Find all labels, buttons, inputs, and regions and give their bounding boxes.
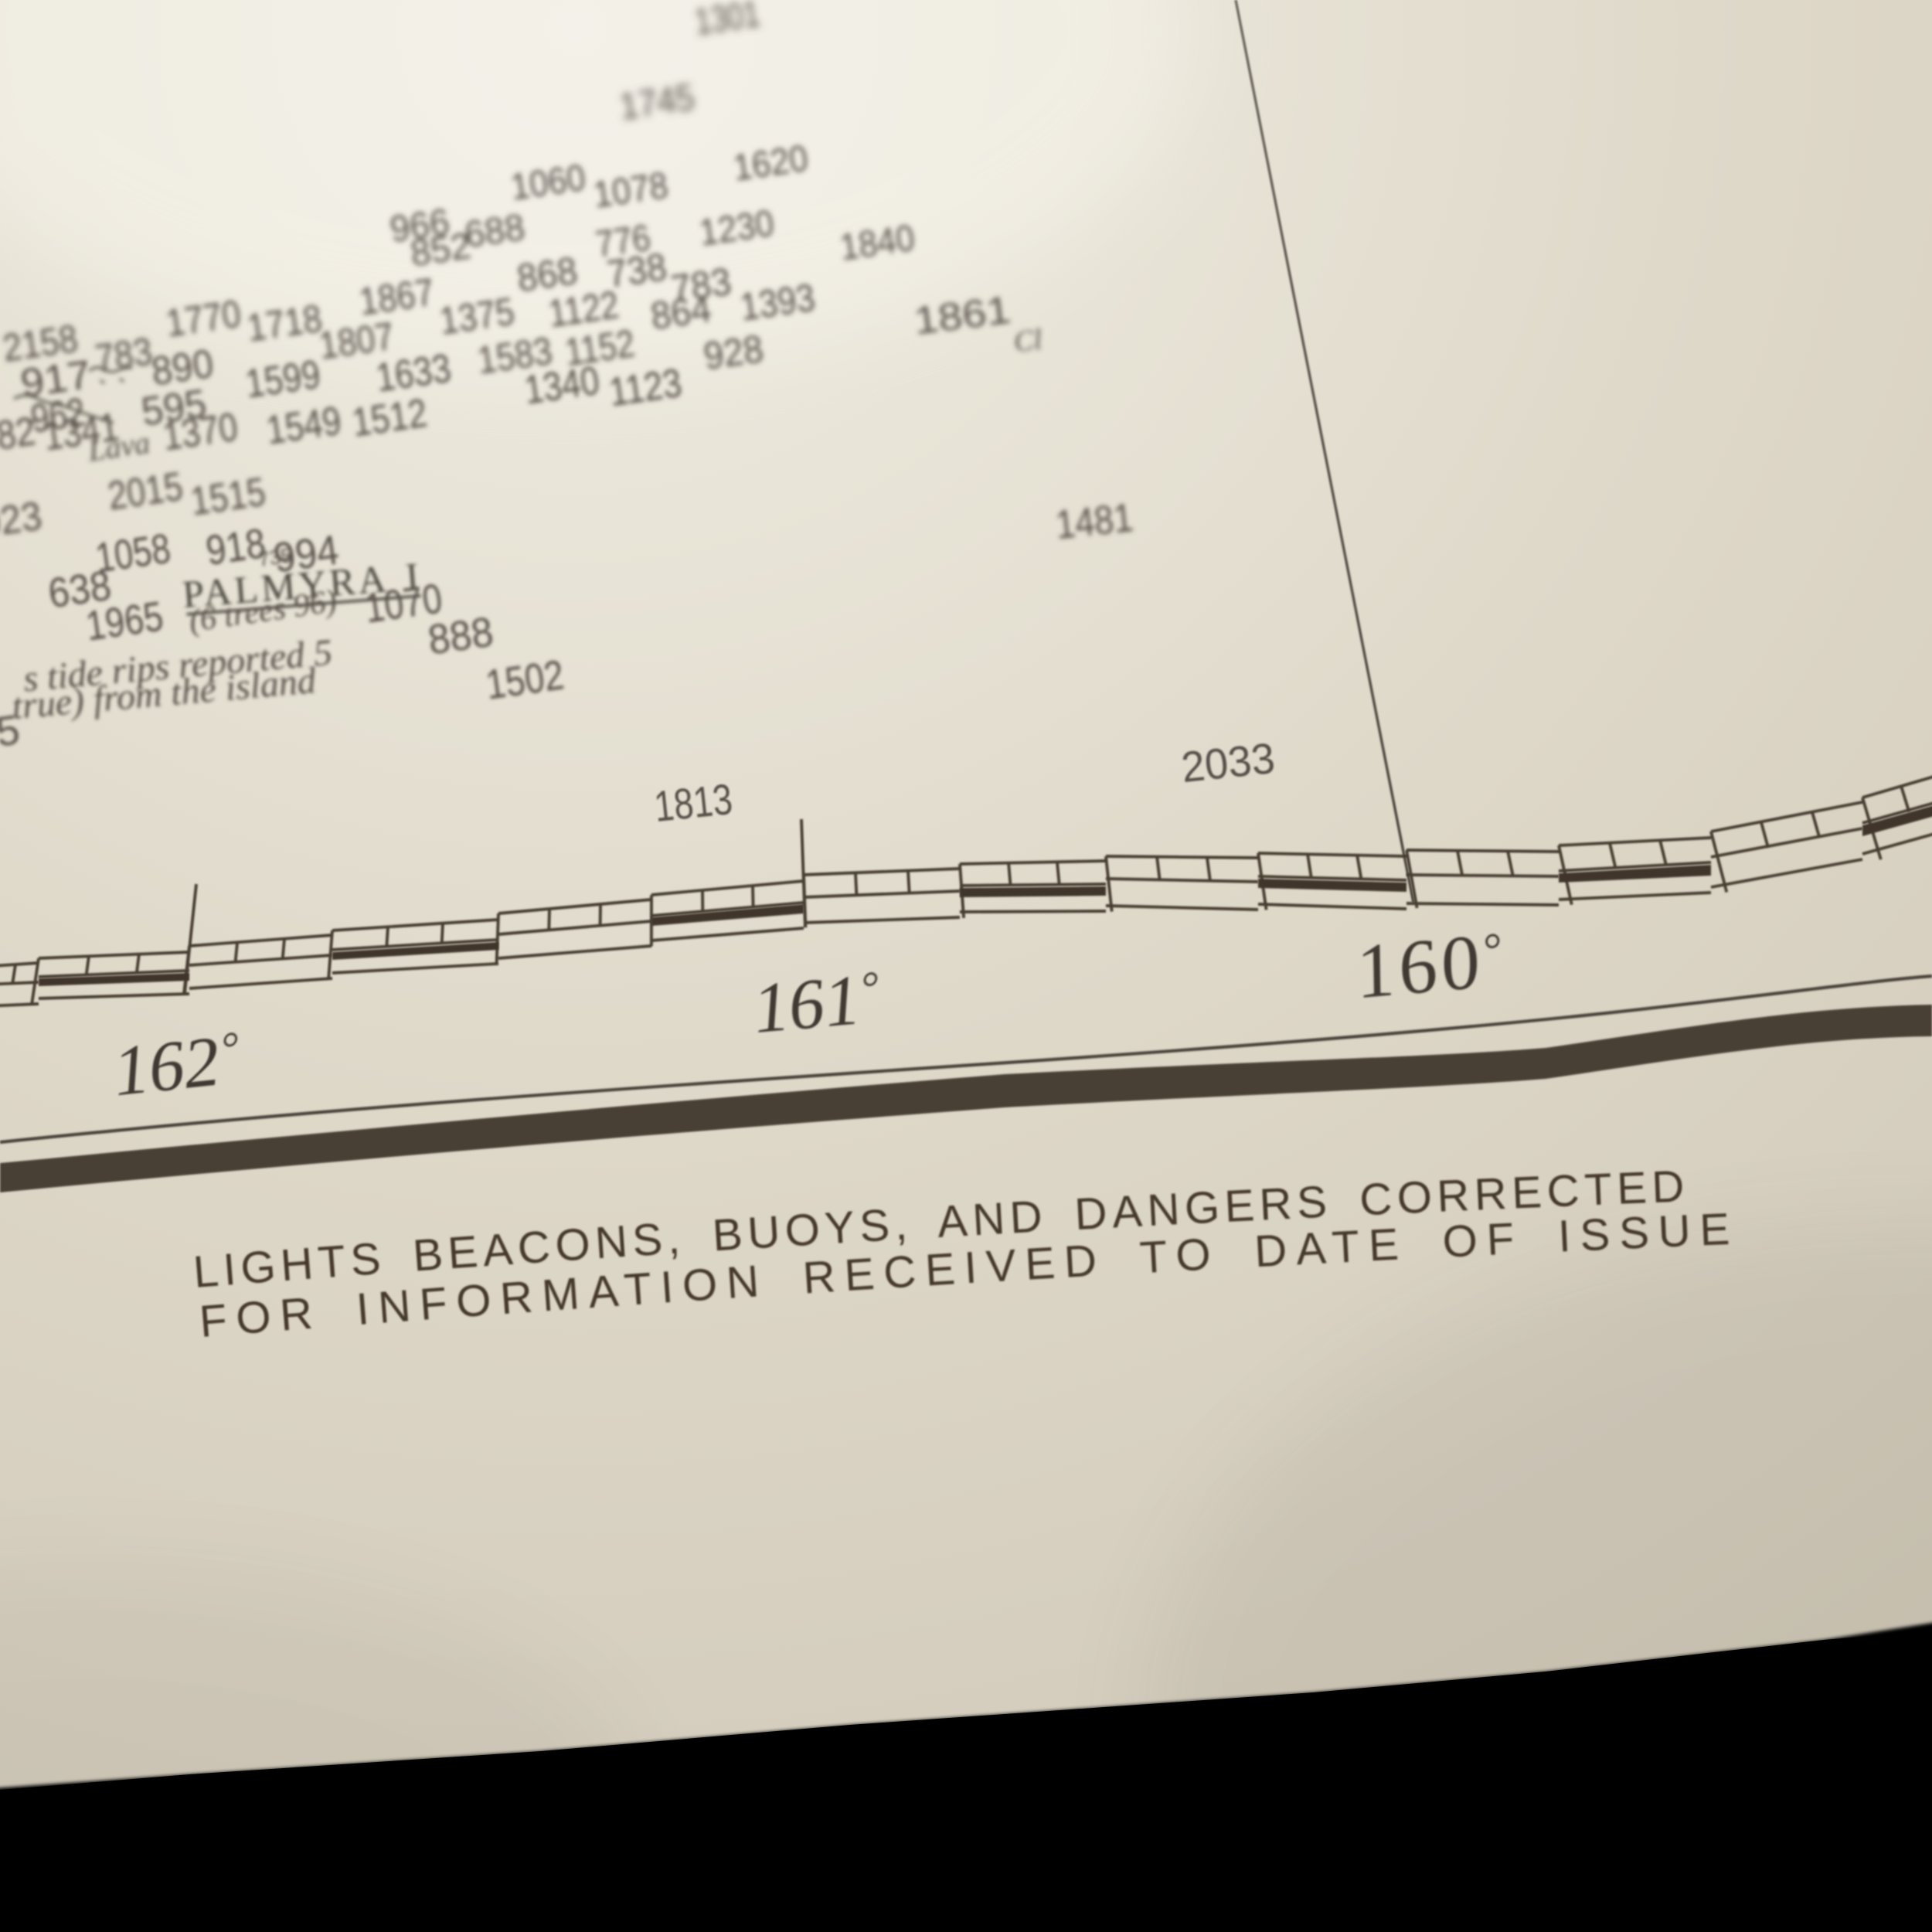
svg-text:888: 888 [425,608,496,663]
svg-text:852: 852 [408,226,474,274]
svg-text:1481: 1481 [1053,495,1135,548]
svg-text:2033: 2033 [1179,733,1277,791]
svg-text:928: 928 [701,327,766,378]
svg-text:783: 783 [93,329,155,380]
svg-text:688: 688 [462,207,528,256]
svg-text:Cl: Cl [1012,323,1043,359]
svg-text:923: 923 [0,494,45,547]
svg-text:160°: 160° [1355,917,1506,1015]
svg-text:864: 864 [648,287,714,338]
svg-text:382: 382 [0,409,38,461]
svg-text:1813: 1813 [652,774,735,831]
